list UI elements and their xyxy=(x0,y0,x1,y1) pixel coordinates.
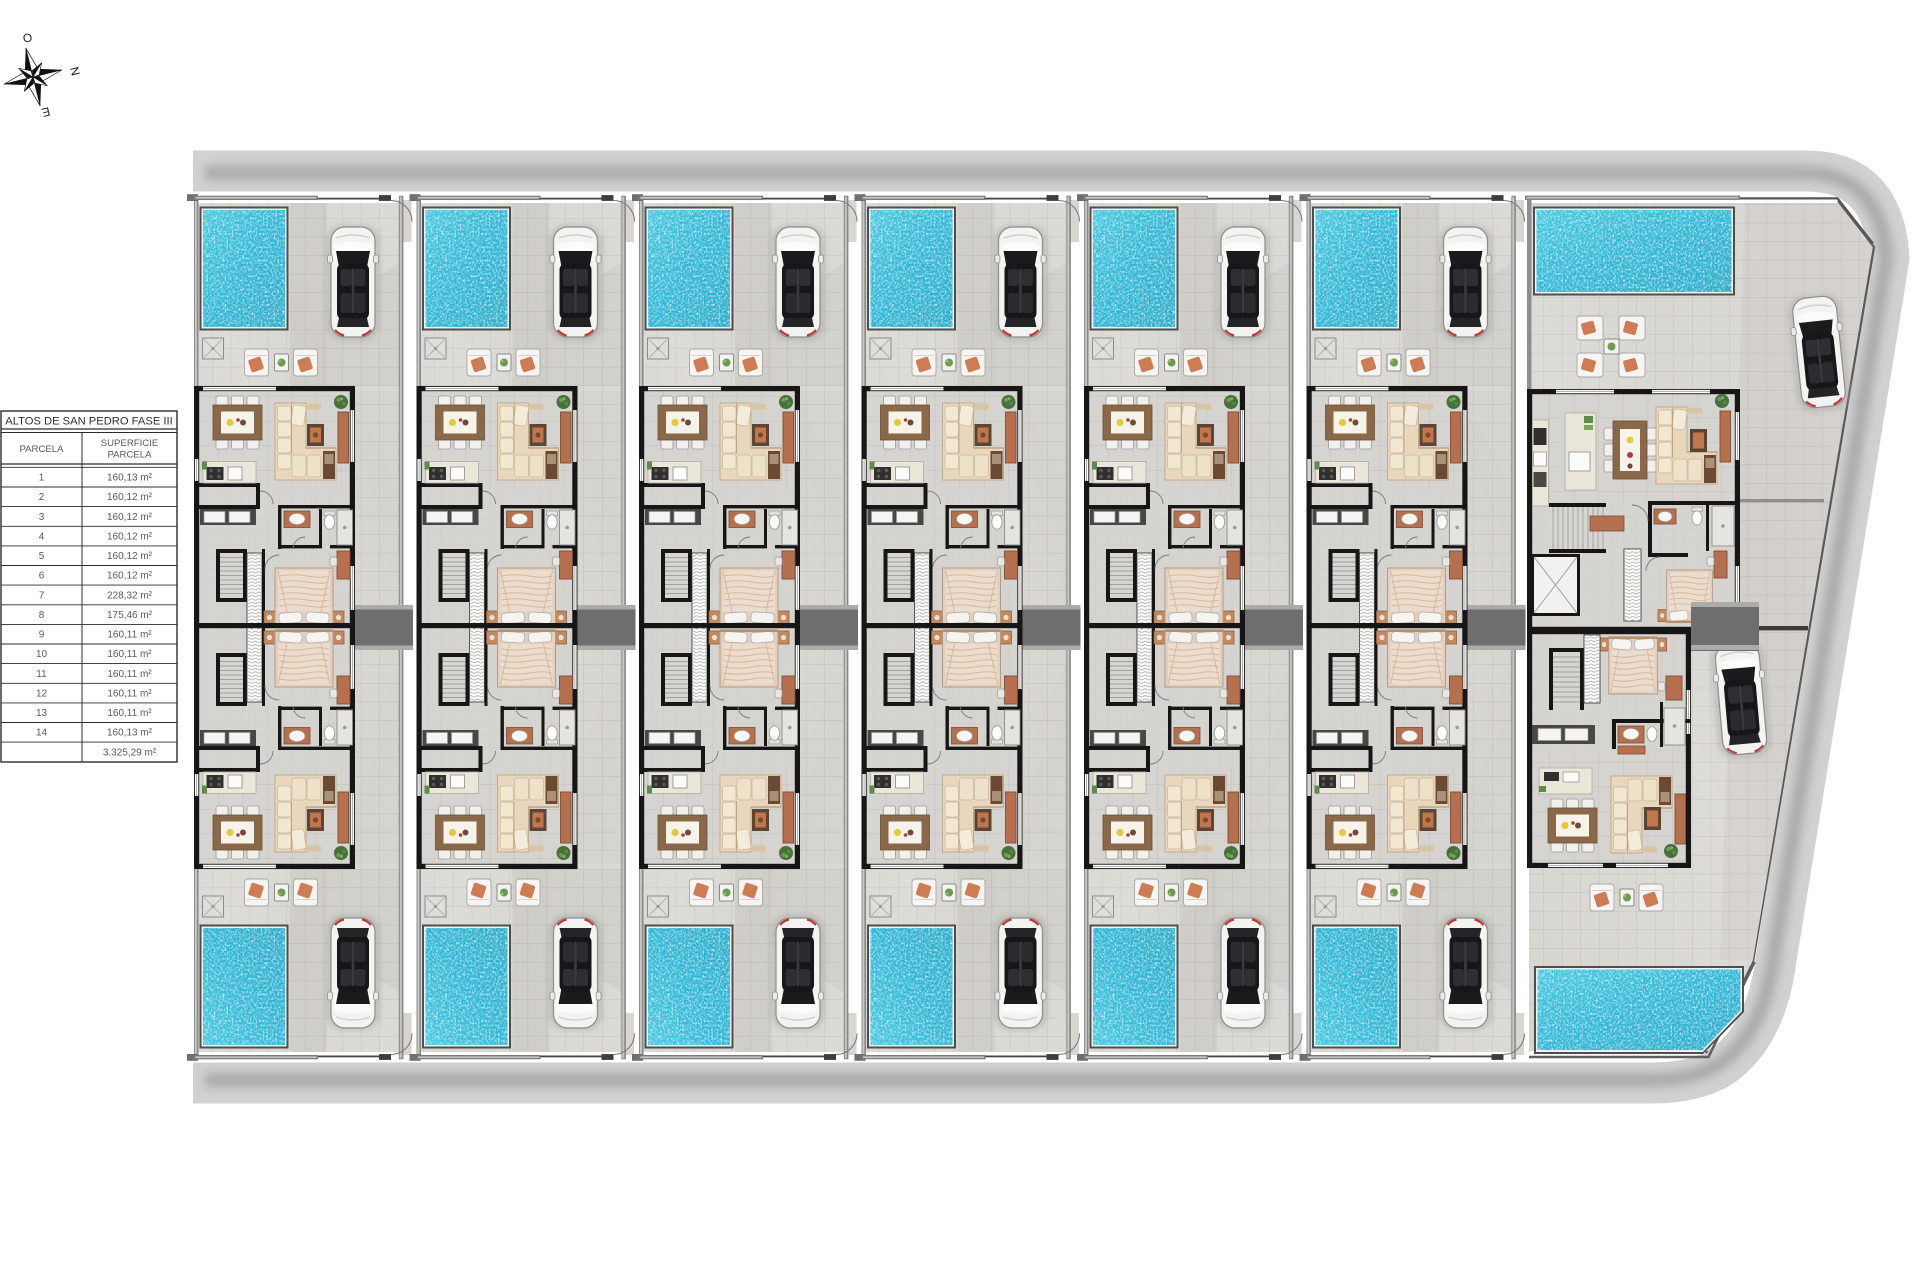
svg-text:160,12 m²: 160,12 m² xyxy=(107,512,153,523)
svg-text:PARCELA: PARCELA xyxy=(19,444,64,455)
svg-text:O: O xyxy=(21,30,33,46)
svg-text:160,11 m²: 160,11 m² xyxy=(107,669,152,680)
svg-text:3: 3 xyxy=(39,512,45,523)
svg-text:160,12 m²: 160,12 m² xyxy=(107,492,153,503)
svg-text:160,13 m²: 160,13 m² xyxy=(107,728,153,739)
svg-text:PARCELA: PARCELA xyxy=(107,450,152,461)
svg-text:160,11 m²: 160,11 m² xyxy=(107,689,152,700)
svg-text:5: 5 xyxy=(39,551,45,562)
svg-text:160,11 m²: 160,11 m² xyxy=(107,649,152,660)
svg-text:14: 14 xyxy=(36,728,48,739)
svg-text:4: 4 xyxy=(39,532,45,543)
svg-text:2: 2 xyxy=(39,492,45,503)
svg-text:12: 12 xyxy=(36,689,48,700)
svg-text:10: 10 xyxy=(36,649,48,660)
svg-text:3.325,29 m²: 3.325,29 m² xyxy=(103,747,157,758)
svg-text:8: 8 xyxy=(39,610,45,621)
svg-text:11: 11 xyxy=(36,669,47,680)
svg-text:13: 13 xyxy=(36,708,48,719)
svg-text:160,12 m²: 160,12 m² xyxy=(107,532,153,543)
svg-text:9: 9 xyxy=(39,630,45,641)
svg-text:175,46 m²: 175,46 m² xyxy=(107,610,153,621)
svg-text:160,13 m²: 160,13 m² xyxy=(107,473,153,484)
svg-text:7: 7 xyxy=(39,590,45,601)
svg-text:160,12 m²: 160,12 m² xyxy=(107,551,153,562)
svg-text:E: E xyxy=(40,104,51,120)
svg-text:ALTOS DE SAN PEDRO FASE III: ALTOS DE SAN PEDRO FASE III xyxy=(5,416,172,428)
svg-text:N: N xyxy=(67,65,83,77)
svg-text:160,11 m²: 160,11 m² xyxy=(107,630,152,641)
svg-text:SUPERFICIE: SUPERFICIE xyxy=(101,438,159,449)
svg-text:1: 1 xyxy=(39,473,45,484)
svg-text:160,12 m²: 160,12 m² xyxy=(107,571,153,582)
svg-text:6: 6 xyxy=(39,571,45,582)
svg-text:228,32 m²: 228,32 m² xyxy=(107,590,153,601)
svg-text:160,11 m²: 160,11 m² xyxy=(107,708,152,719)
